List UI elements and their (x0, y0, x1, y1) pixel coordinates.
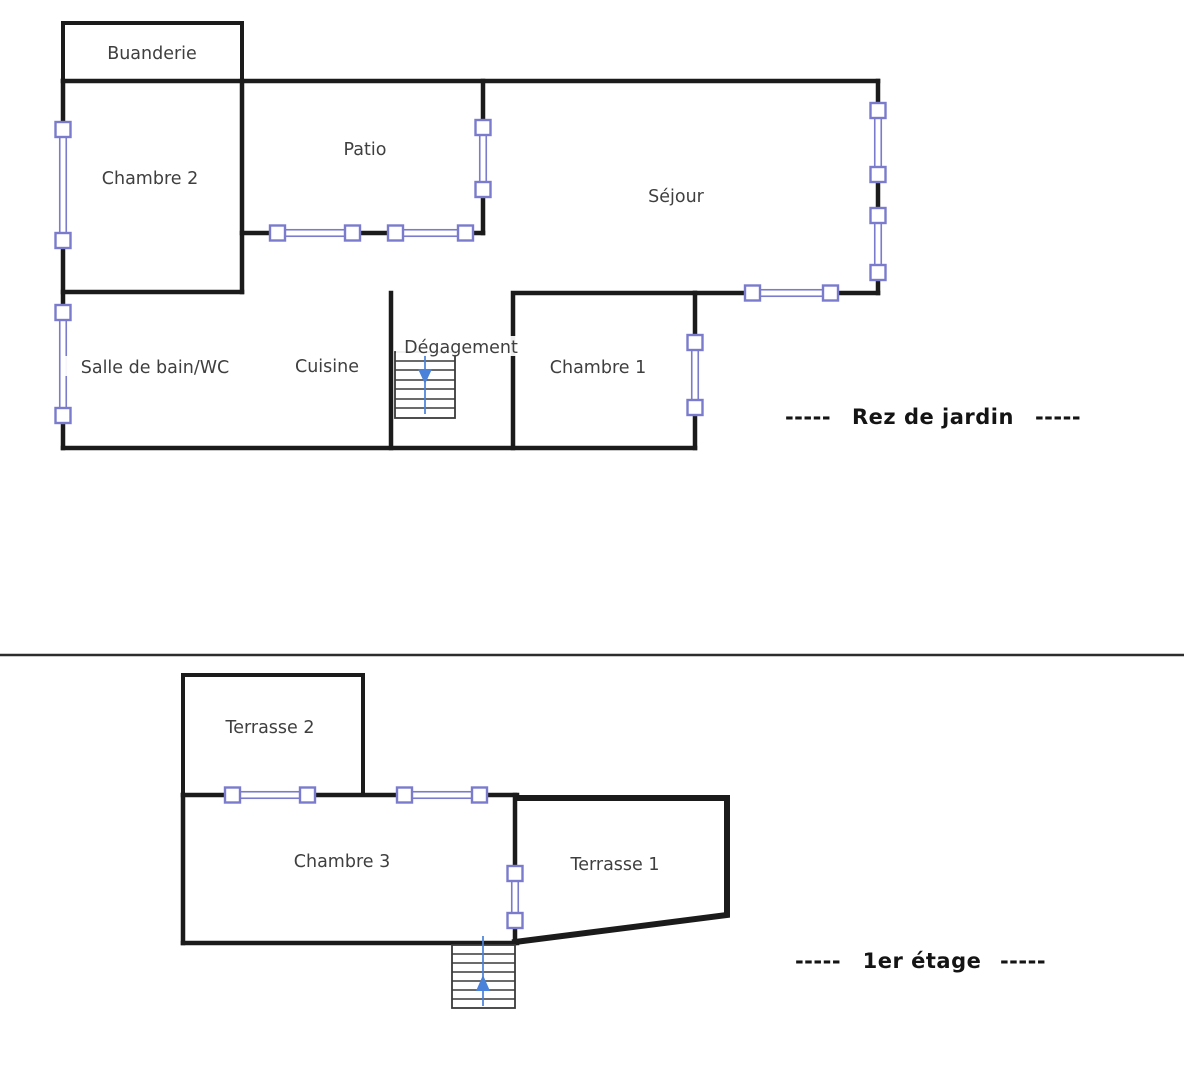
room-label-cuisine: Cuisine (291, 355, 364, 377)
room-label-degagement: Dégagement (396, 336, 526, 358)
window-sejour-south (745, 286, 838, 301)
room-label-chambre-2: Chambre 2 (97, 167, 204, 189)
window-chambre3-north-2 (397, 788, 487, 803)
stairs-up-symbol (452, 936, 515, 1008)
window-sejour-east-2 (871, 208, 886, 280)
floor-label-1er-etage: ----- 1er étage ----- (795, 949, 1046, 973)
window-patio-south-2 (388, 226, 473, 241)
floorplan-canvas: Buanderie Chambre 2 Patio Séjour Salle d… (0, 0, 1184, 1080)
floor-label-rez-de-jardin: ----- Rez de jardin ----- (785, 405, 1081, 429)
room-label-salle-de-bain-wc-text: Salle de bain/WC (81, 358, 230, 378)
stairs-down-symbol (395, 352, 455, 418)
room-label-terrasse-1: Terrasse 1 (559, 853, 671, 875)
room-label-chambre-1-text: Chambre 1 (550, 358, 646, 378)
window-chambre3-east (508, 866, 523, 928)
room-label-terrasse-2: Terrasse 2 (214, 716, 326, 738)
window-chambre3-north-1 (225, 788, 315, 803)
room-label-patio: Patio (337, 138, 393, 160)
window-chambre2-west (56, 122, 71, 248)
room-label-chambre-1: Chambre 1 (545, 356, 652, 378)
floor-label-etage-text: 1er étage (863, 949, 982, 973)
room-label-patio-text: Patio (344, 140, 387, 160)
floor-label-etage-dashes-left: ----- (795, 949, 841, 973)
floorplan-page: Buanderie Chambre 2 Patio Séjour Salle d… (0, 0, 1184, 1080)
floor-label-etage-dashes-right: ----- (1000, 949, 1046, 973)
room-label-terrasse-1-text: Terrasse 1 (570, 855, 660, 875)
room-label-chambre-2-text: Chambre 2 (102, 169, 198, 189)
room-label-sejour-text: Séjour (648, 187, 705, 207)
floor-label-rez-dashes-left: ----- (785, 405, 831, 429)
window-patio-east (476, 120, 491, 197)
walls-1er-etage (183, 675, 727, 943)
room-label-cuisine-text: Cuisine (295, 357, 359, 377)
floor-1er-etage: Terrasse 2 Chambre 3 Terrasse 1 ----- 1e… (183, 675, 1046, 1008)
room-label-buanderie-text: Buanderie (107, 44, 197, 64)
room-label-degagement-text: Dégagement (404, 338, 518, 358)
room-label-salle-de-bain-wc: Salle de bain/WC (65, 356, 246, 378)
room-labels-rez-de-jardin: Buanderie Chambre 2 Patio Séjour Salle d… (65, 42, 709, 378)
floor-rez-de-jardin: Buanderie Chambre 2 Patio Séjour Salle d… (56, 23, 1082, 448)
room-label-chambre-3-text: Chambre 3 (294, 852, 390, 872)
room-label-chambre-3: Chambre 3 (285, 850, 399, 872)
window-sejour-east-1 (871, 103, 886, 182)
room-label-terrasse-2-text: Terrasse 2 (225, 718, 315, 738)
floor-label-rez-text: Rez de jardin (852, 405, 1014, 429)
room-label-buanderie: Buanderie (100, 42, 206, 64)
floor-label-rez-dashes-right: ----- (1035, 405, 1081, 429)
window-patio-south-1 (270, 226, 360, 241)
room-label-sejour: Séjour (643, 185, 709, 207)
window-chambre1-east (688, 335, 703, 415)
